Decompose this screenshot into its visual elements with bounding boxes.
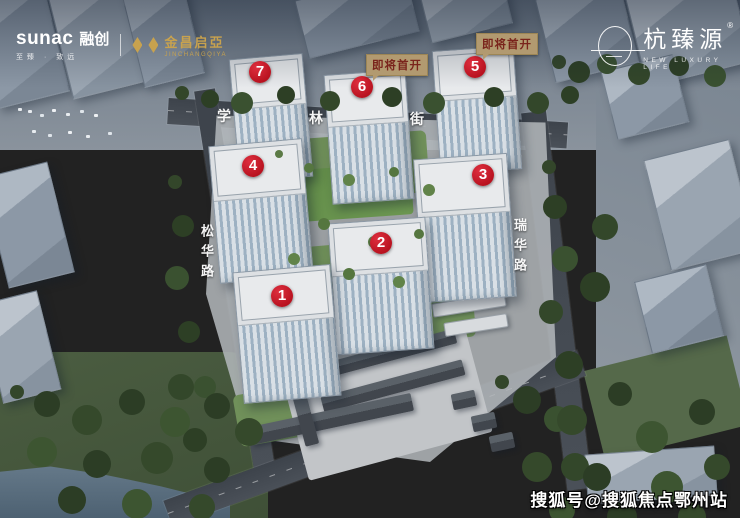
sunac-slogan: 至臻 · 致远 [16,52,109,62]
sunac-latin-wordmark: sunac [16,28,73,50]
building-marker-3: 3 [472,164,494,186]
street-label-瑞华路: 瑞华路 [510,218,529,278]
aerial-masterplan-render: 1234567即将首开即将首开学林街松华路瑞华路 sunac 融创 至臻 · 致… [0,0,740,518]
registered-mark: ® [727,21,733,30]
coming-soon-badge-5: 即将首开 [476,33,538,55]
partner-diamond-icon [148,37,158,53]
building-marker-2: 2 [370,232,392,254]
project-name: 杭臻源 [643,20,727,54]
sunac-logo: sunac 融创 至臻 · 致远 [16,28,109,62]
partner-latin-wordmark: JINCHANGQIYA [164,52,227,58]
developer-logos: sunac 融创 至臻 · 致远 金昌启亞 JINCHANGQIYA [16,28,227,62]
partner-diamond-icon [132,37,142,53]
building-marker-1: 1 [271,285,293,307]
project-logo: 杭臻源 ® NEW LUXURY LIFE [596,20,740,71]
street-label-学林街: 林 [309,108,323,128]
sunac-cn-wordmark: 融创 [79,28,109,49]
watermark: 搜狐号@搜狐焦点鄂州站 [530,486,728,511]
partner-logo: 金昌启亞 JINCHANGQIYA [132,32,227,58]
street-label-学林街: 街 [410,109,424,129]
logo-divider [120,34,121,56]
building-marker-7: 7 [249,61,271,83]
project-tagline: NEW LUXURY LIFE [643,57,740,71]
annotation-layer: 1234567即将首开即将首开学林街松华路瑞华路 [0,0,740,518]
street-label-松华路: 松华路 [197,224,216,284]
project-emblem-icon [596,24,634,68]
building-marker-4: 4 [242,155,264,177]
street-label-学林街: 学 [217,106,231,126]
coming-soon-badge-6: 即将首开 [366,54,428,76]
partner-cn-wordmark: 金昌启亞 [164,32,227,51]
building-marker-6: 6 [351,76,373,98]
